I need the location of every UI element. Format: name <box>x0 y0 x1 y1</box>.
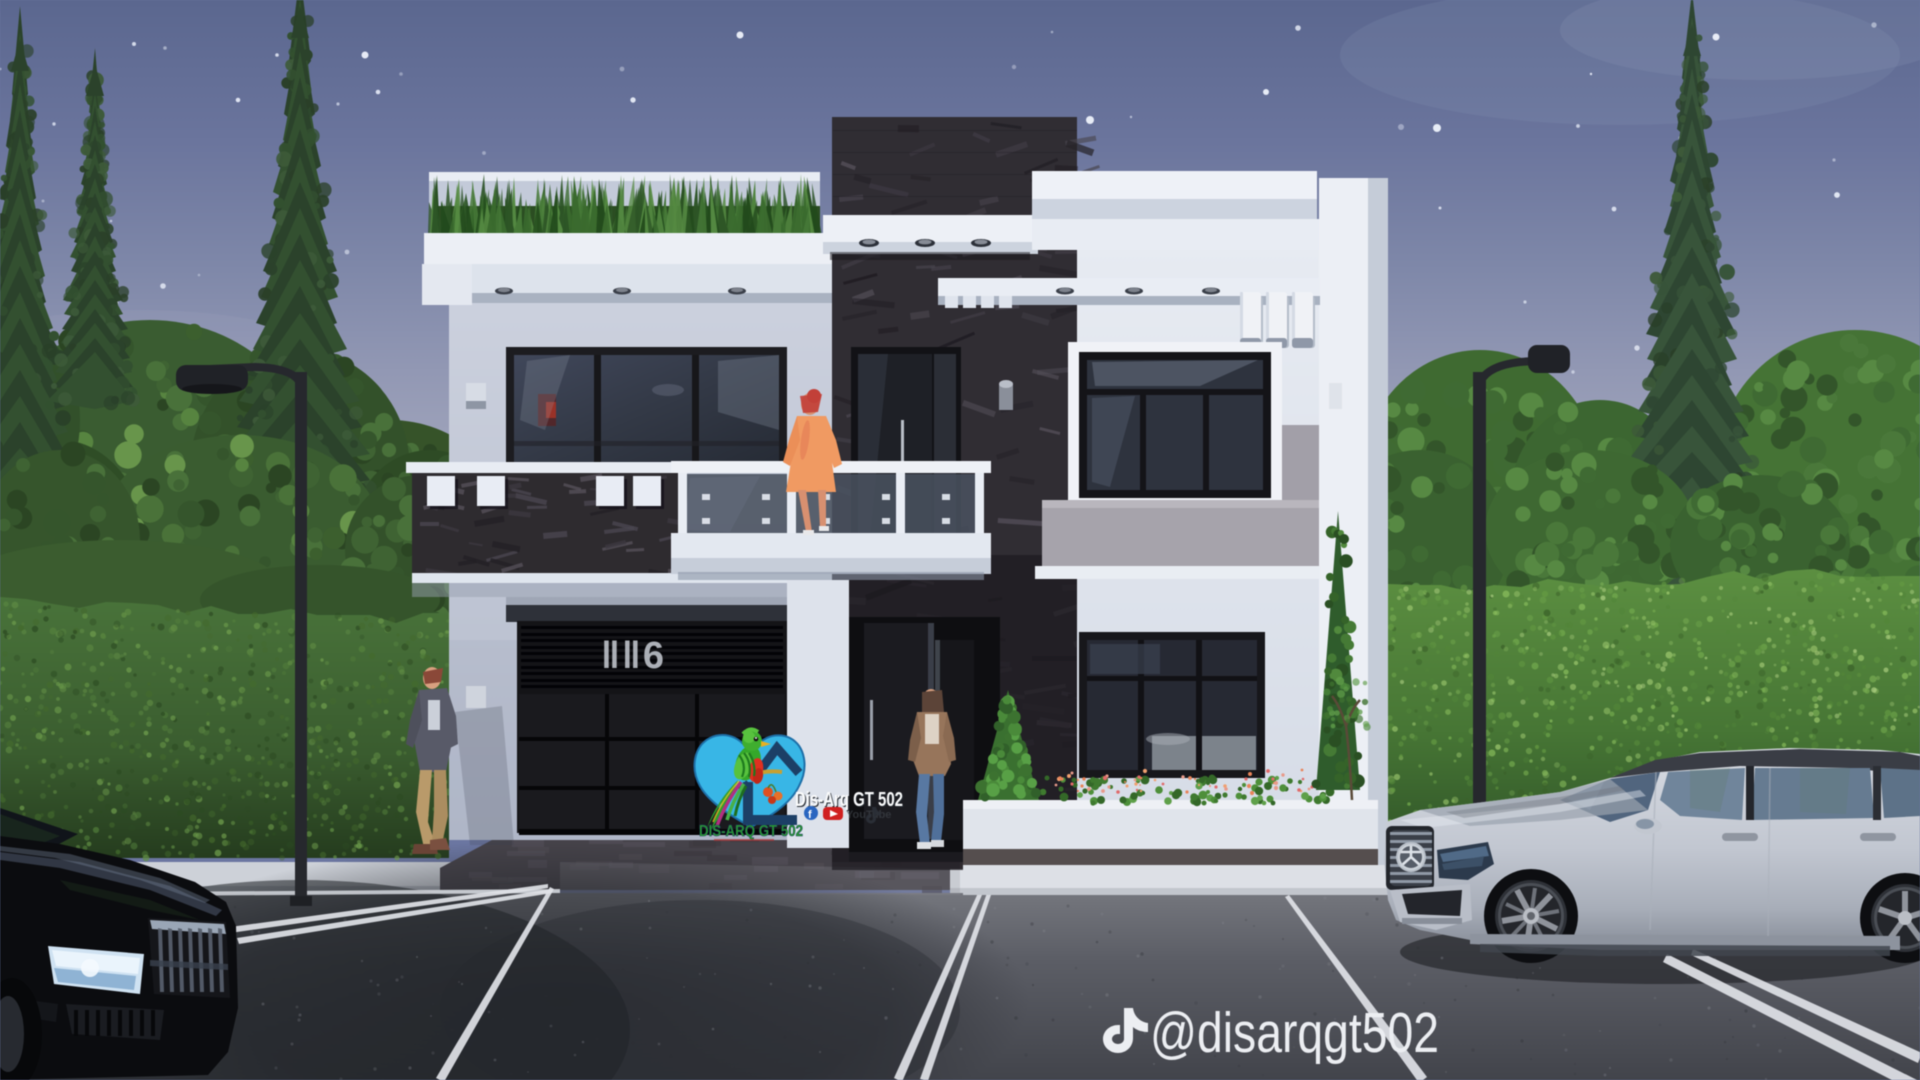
svg-text:DIS-ARQ GT 502: DIS-ARQ GT 502 <box>699 823 803 840</box>
svg-text:@disarqgt502: @disarqgt502 <box>1150 1001 1439 1065</box>
svg-text:f: f <box>808 809 812 821</box>
svg-text:‖‖6: ‖‖6 <box>601 635 666 677</box>
